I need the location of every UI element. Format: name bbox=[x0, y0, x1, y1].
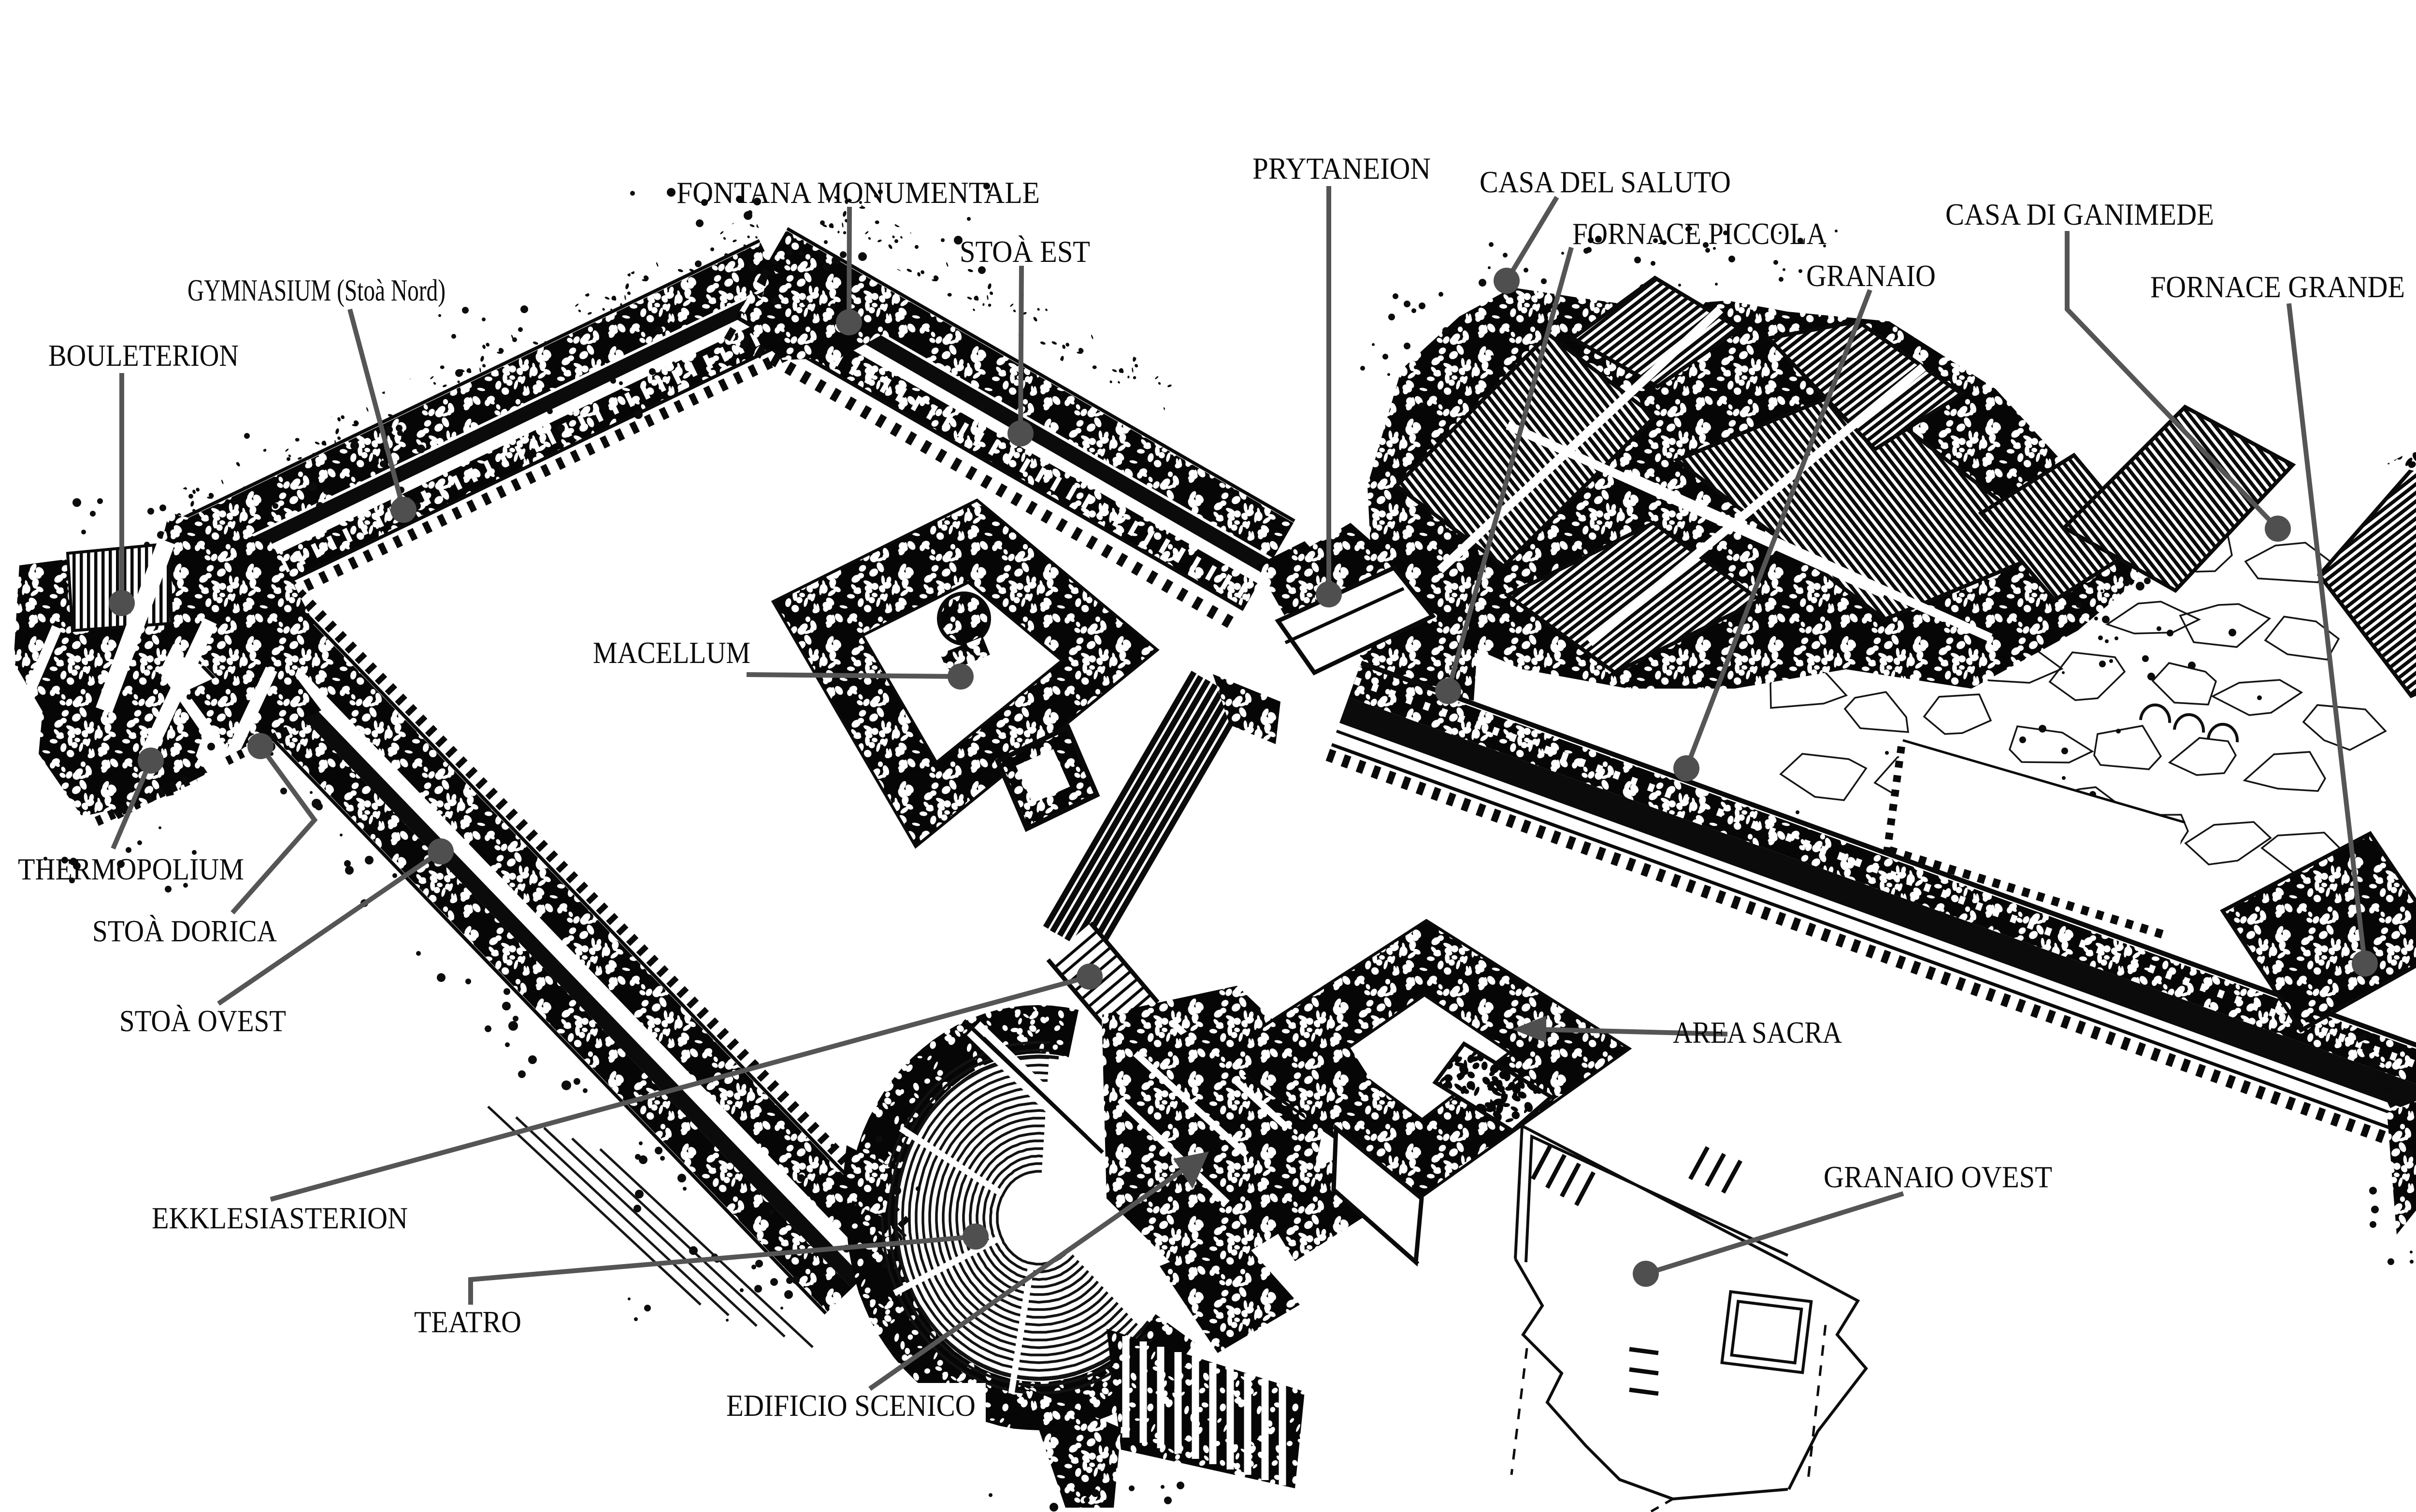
svg-text:CASA DEL SALUTO: CASA DEL SALUTO bbox=[1480, 165, 1731, 199]
svg-text:CASA DI GANIMEDE: CASA DI GANIMEDE bbox=[1945, 197, 2214, 231]
svg-text:AREA SACRA: AREA SACRA bbox=[1673, 1015, 1842, 1050]
svg-text:GYMNASIUM (Stoà Nord): GYMNASIUM (Stoà Nord) bbox=[187, 273, 446, 307]
svg-text:FONTANA MONUMENTALE: FONTANA MONUMENTALE bbox=[676, 175, 1040, 210]
svg-text:PRYTANEION: PRYTANEION bbox=[1252, 151, 1431, 186]
svg-text:FORNACE PICCOLA: FORNACE PICCOLA bbox=[1572, 216, 1826, 251]
svg-text:TEATRO: TEATRO bbox=[414, 1305, 521, 1339]
svg-text:EDIFICIO SCENICO: EDIFICIO SCENICO bbox=[726, 1388, 976, 1423]
svg-text:THERMOPOLIUM: THERMOPOLIUM bbox=[18, 852, 244, 886]
svg-text:EKKLESIASTERION: EKKLESIASTERION bbox=[152, 1201, 408, 1235]
svg-text:STOÀ EST: STOÀ EST bbox=[960, 234, 1090, 269]
svg-text:FORNACE GRANDE: FORNACE GRANDE bbox=[2150, 270, 2405, 304]
svg-text:STOÀ DORICA: STOÀ DORICA bbox=[92, 914, 277, 948]
svg-text:MACELLUM: MACELLUM bbox=[593, 635, 750, 670]
svg-text:STOÀ OVEST: STOÀ OVEST bbox=[119, 1004, 286, 1038]
svg-text:BOULETERION: BOULETERION bbox=[48, 338, 239, 373]
svg-text:GRANAIO: GRANAIO bbox=[1806, 259, 1936, 293]
svg-text:GRANAIO OVEST: GRANAIO OVEST bbox=[1824, 1160, 2052, 1194]
